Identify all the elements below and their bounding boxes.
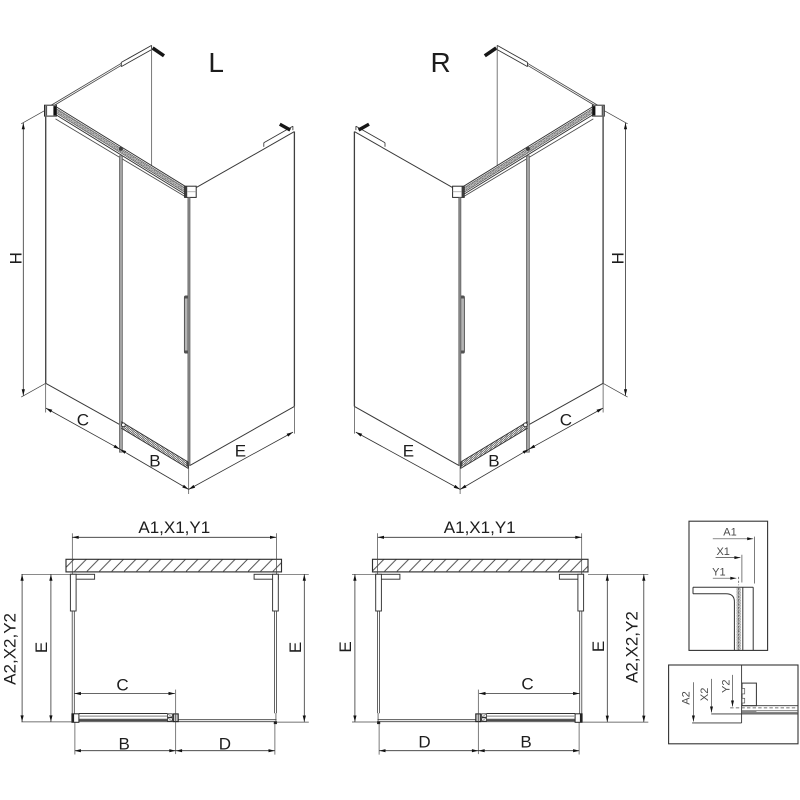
svg-text:B: B [488, 452, 499, 471]
svg-text:C: C [116, 675, 128, 694]
svg-text:A1,X1,Y1: A1,X1,Y1 [444, 518, 516, 537]
svg-text:E: E [32, 642, 51, 653]
svg-text:C: C [77, 411, 89, 430]
svg-text:D: D [418, 733, 430, 752]
svg-text:A1: A1 [723, 527, 736, 539]
svg-text:Y1: Y1 [712, 567, 725, 579]
svg-text:E: E [589, 641, 608, 652]
svg-text:C: C [521, 675, 533, 694]
svg-text:C: C [560, 411, 572, 430]
svg-text:X1: X1 [716, 546, 729, 558]
svg-text:A2: A2 [680, 691, 692, 704]
svg-text:H: H [7, 252, 26, 264]
svg-text:E: E [403, 441, 414, 460]
svg-text:B: B [119, 735, 130, 754]
svg-text:E: E [286, 642, 305, 653]
svg-text:H: H [609, 252, 628, 264]
svg-text:D: D [219, 735, 231, 754]
svg-text:R: R [430, 47, 450, 78]
svg-text:X2: X2 [699, 688, 711, 701]
svg-text:L: L [208, 47, 224, 78]
svg-text:A1,X1,Y1: A1,X1,Y1 [138, 518, 210, 537]
svg-text:E: E [235, 441, 246, 460]
svg-text:A2,X2,Y2: A2,X2,Y2 [623, 611, 642, 683]
svg-text:Y2: Y2 [721, 679, 733, 692]
svg-text:E: E [336, 641, 355, 652]
svg-text:B: B [520, 733, 531, 752]
svg-text:B: B [149, 452, 160, 471]
svg-text:A2,X2,Y2: A2,X2,Y2 [1, 613, 20, 685]
